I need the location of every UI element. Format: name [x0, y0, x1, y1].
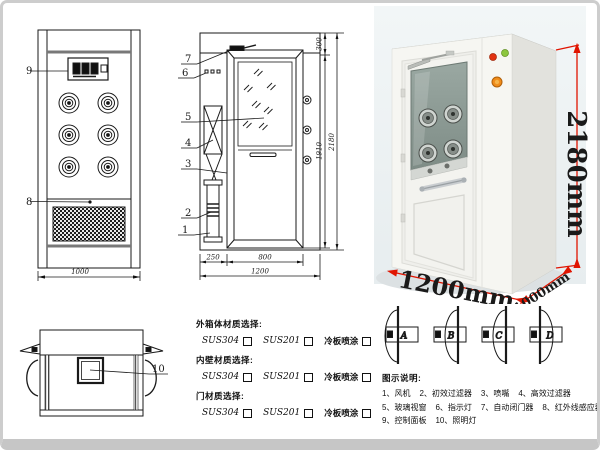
material-option-label: SUS201: [263, 336, 300, 346]
material-section-title: 门材质选择:: [196, 390, 378, 402]
material-option: SUS304: [202, 336, 252, 346]
callout-pre-filter: 2: [185, 208, 191, 219]
material-option: SUS304: [202, 408, 252, 418]
top-view-drawing: 10: [18, 322, 188, 432]
side-view-drawing: 7 6 5 4 3 2 1 300 1910 2180 250 800 1200: [168, 18, 353, 293]
air-return-grille: [53, 207, 125, 241]
door-swing-option-a: A: [385, 306, 418, 364]
checkbox[interactable]: [243, 337, 252, 346]
callout-fan: 1: [182, 225, 188, 236]
checkbox[interactable]: [362, 409, 371, 418]
material-option-label: SUS201: [263, 372, 300, 382]
height-dimensions: [303, 33, 344, 250]
dim-door-height: 1910: [316, 142, 324, 160]
door-option-label-d: D: [545, 332, 553, 342]
dim-side-panel: 250: [205, 254, 220, 262]
photo-dim-height: 2180mm: [561, 110, 590, 237]
legend-item: 1、风机: [382, 389, 410, 398]
material-option-label: 冷板喷涂: [324, 371, 358, 383]
front-width-dimension: [38, 271, 140, 281]
checkbox[interactable]: [243, 409, 252, 418]
legend-row: 5、玻璃视窗6、指示灯7、自动闭门器8、红外线感应器: [382, 401, 592, 415]
material-option-label: SUS304: [202, 336, 239, 346]
material-section-outer-box: 外箱体材质选择: SUS304 SUS201 冷板喷涂: [196, 318, 378, 347]
callout-nozzle: 3: [185, 159, 191, 170]
material-option: 冷板喷涂: [324, 335, 371, 347]
cabinet-door: [401, 51, 476, 281]
checkbox[interactable]: [362, 337, 371, 346]
legend-item: 9、控制面板: [382, 416, 426, 425]
legend-row: 1、风机2、初效过滤器3、喷嘴4、高效过滤器: [382, 387, 592, 401]
dim-total-width: 1200: [251, 268, 269, 276]
legend-item: 5、玻璃视窗: [382, 403, 426, 412]
dim-front-width: 1000: [71, 268, 89, 276]
legend-item: 3、喷嘴: [481, 389, 509, 398]
front-view-drawing: 9 8 1000: [20, 18, 165, 290]
red-indicator-light: [490, 54, 497, 61]
checkbox[interactable]: [362, 373, 371, 382]
door-swing-option-b: B: [434, 306, 466, 364]
legend-item: 2、初效过滤器: [419, 389, 471, 398]
callout-glass-window: 5: [185, 112, 191, 123]
material-options-block: 外箱体材质选择: SUS304 SUS201 冷板喷涂 内壁材质选择: SUS3…: [196, 318, 378, 426]
door-swing-option-c: C: [482, 306, 514, 364]
legend-item: 10、照明灯: [435, 416, 476, 425]
material-option-label: 冷板喷涂: [324, 335, 358, 347]
door-option-label-b: B: [447, 332, 455, 342]
material-section-title: 内壁材质选择:: [196, 354, 378, 366]
dim-total-height: 2180: [328, 133, 336, 152]
material-section-title: 外箱体材质选择:: [196, 318, 378, 330]
door-option-label-a: A: [400, 332, 408, 342]
callout-indicator-light: 6: [182, 68, 188, 79]
checkbox[interactable]: [304, 373, 313, 382]
checkbox[interactable]: [243, 373, 252, 382]
cabinet-side-face: [512, 34, 556, 294]
callout-control-panel: 9: [26, 66, 32, 77]
glass-hatching: [243, 69, 276, 130]
material-option: SUS201: [263, 336, 313, 346]
green-indicator-light: [502, 50, 509, 57]
fan-and-filter-column: [204, 70, 222, 242]
checkbox[interactable]: [304, 409, 313, 418]
air-shower-cabinet: [392, 34, 556, 294]
checkbox[interactable]: [304, 337, 313, 346]
material-option-label: 冷板喷涂: [324, 407, 358, 419]
callout-hepa-filter: 4: [185, 138, 191, 149]
material-option-label: SUS304: [202, 408, 239, 418]
material-section-inner-wall: 内壁材质选择: SUS304 SUS201 冷板喷涂: [196, 354, 378, 383]
product-photo: 2180mm 1200mm 1000mm: [372, 4, 590, 304]
legend-row: 9、控制面板10、照明灯: [382, 414, 592, 428]
nozzle-grid: [59, 93, 118, 177]
door-section: [227, 45, 303, 248]
dim-top-section: 300: [316, 37, 324, 51]
material-option: 冷板喷涂: [324, 371, 371, 383]
callout-grille: 8: [26, 197, 32, 208]
dim-door-width: 800: [258, 254, 272, 262]
material-option: 冷板喷涂: [324, 407, 371, 419]
legend-block: 图示说明: 1、风机2、初效过滤器3、喷嘴4、高效过滤器 5、玻璃视窗6、指示灯…: [382, 372, 592, 428]
material-option-label: SUS304: [202, 372, 239, 382]
material-option: SUS201: [263, 372, 313, 382]
material-option: SUS304: [202, 372, 252, 382]
material-section-door: 门材质选择: SUS304 SUS201 冷板喷涂: [196, 390, 378, 419]
callout-door-closer: 7: [185, 54, 191, 65]
legend-item: 6、指示灯: [435, 403, 471, 412]
door-option-label-c: C: [496, 332, 503, 342]
legend-title: 图示说明:: [382, 372, 592, 384]
control-panel-detail: [68, 58, 108, 80]
side-nozzles: [303, 96, 311, 164]
material-option-label: SUS201: [263, 408, 300, 418]
legend-item: 8、红外线感应器: [542, 403, 600, 412]
front-view-body: [30, 30, 140, 281]
legend-item: 7、自动闭门器: [481, 403, 533, 412]
top-view-body: [20, 330, 168, 416]
callout-lamp: 10: [152, 364, 165, 375]
door-swing-option-d: D: [530, 306, 562, 364]
material-option: SUS201: [263, 408, 313, 418]
door-swing-diagrams: A B C D: [378, 300, 578, 372]
legend-item: 4、高效过滤器: [518, 389, 570, 398]
